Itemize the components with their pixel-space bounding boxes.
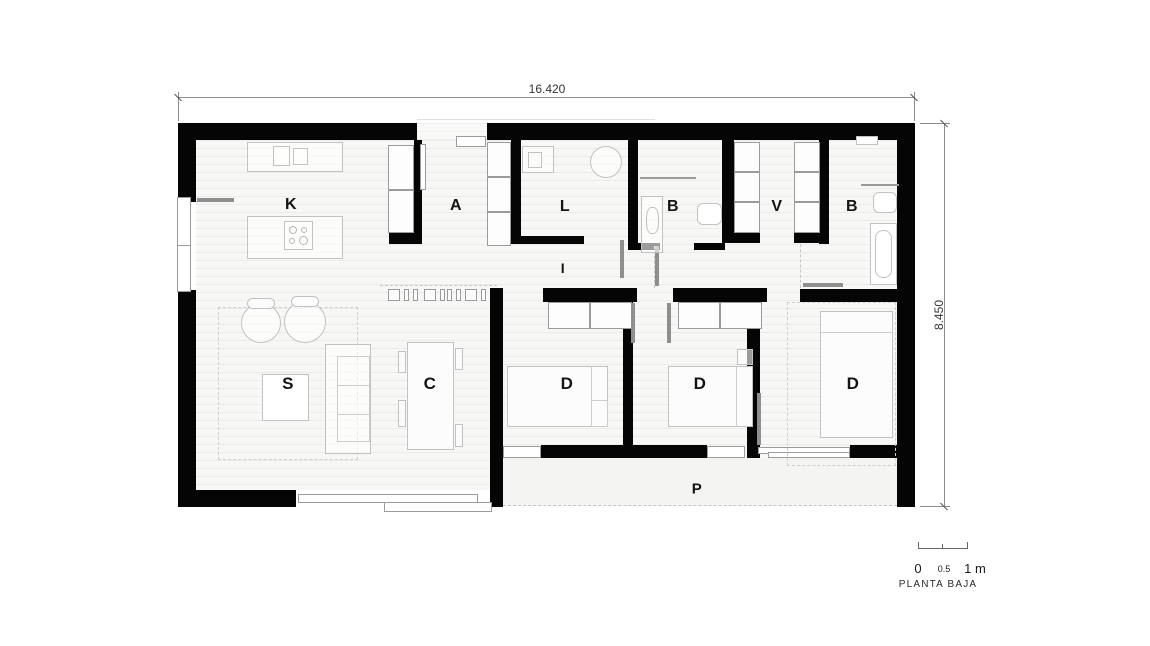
armchair-back xyxy=(291,296,319,307)
wall-dressing-base-right xyxy=(794,233,821,243)
shower-screen xyxy=(640,177,696,179)
scale-bar-tick xyxy=(918,542,919,549)
scale-bar-line xyxy=(918,548,968,549)
hall-shelf-box xyxy=(481,289,486,301)
wall-entrance-laundry xyxy=(511,140,521,244)
bedroom2-closet-door xyxy=(678,302,720,329)
room-label-kitchen: K xyxy=(285,196,297,214)
armchair xyxy=(241,303,281,343)
cooktop xyxy=(284,221,313,250)
wall-laundry-bottom xyxy=(511,236,584,244)
bathtub-inner xyxy=(875,230,892,278)
window-mullion xyxy=(178,245,191,246)
bath2-shelf xyxy=(856,136,878,145)
room-label-dining: C xyxy=(424,374,437,394)
window-bedroom1-porch xyxy=(503,446,541,458)
dressing-wardrobe xyxy=(794,142,820,172)
wall-left-upper xyxy=(178,123,196,202)
sofa-cushion-line xyxy=(337,385,370,386)
scale-label-zero: 0 xyxy=(914,561,921,576)
dining-chair xyxy=(455,424,463,447)
hall-shelf-box xyxy=(404,289,409,301)
bed xyxy=(668,366,753,427)
dining-chair xyxy=(398,400,406,427)
room-label-entrance: A xyxy=(450,197,462,215)
door-leaf-master xyxy=(803,283,843,287)
wall-left-lower xyxy=(178,290,196,507)
nightstand xyxy=(737,349,753,365)
bed-pillow-line xyxy=(821,332,893,333)
room-label-bathroom2: B xyxy=(846,198,858,216)
wall-laundry-bath1 xyxy=(628,140,638,250)
wall-porch-a xyxy=(541,445,707,458)
hall-shelf-box xyxy=(413,289,418,301)
bed-corner xyxy=(591,400,608,427)
wall-bath1-bottom-right xyxy=(694,243,725,250)
dressing-wardrobe xyxy=(734,202,760,233)
room-label-laundry: L xyxy=(560,198,570,216)
door-leaf-left-window xyxy=(197,198,234,202)
plan-caption: PLANTA BAJA xyxy=(899,579,978,590)
dining-chair xyxy=(455,348,463,370)
door-leaf-master-porch xyxy=(757,393,761,445)
toilet xyxy=(697,203,722,225)
armchair xyxy=(284,301,326,343)
room-label-bathroom1: B xyxy=(667,198,679,216)
room-label-bedroom1: D xyxy=(561,374,574,394)
wall-bottom-left xyxy=(178,490,296,507)
dressing-wardrobe xyxy=(794,172,820,202)
bed xyxy=(507,366,608,427)
porch-edge-dashed-line xyxy=(503,505,897,506)
hall-shelf-box xyxy=(440,289,445,301)
dining-chair xyxy=(398,351,406,373)
cooktop-burner xyxy=(301,227,307,233)
bathtub xyxy=(870,223,897,285)
armchair-back xyxy=(247,298,275,309)
room-label-porch: P xyxy=(692,481,703,498)
roof-overhang-line xyxy=(417,119,655,120)
door-leaf-bedroom2 xyxy=(667,303,671,343)
hall-shelf-box xyxy=(465,289,477,301)
wall-kitchen-entrance-foot xyxy=(389,233,422,244)
dimension-width-value: 16.420 xyxy=(529,82,566,96)
room-label-dressing: V xyxy=(771,198,782,216)
washing-machine-door xyxy=(528,152,542,168)
scale-bar-tick xyxy=(967,542,968,549)
wall-living-bedroom1 xyxy=(490,288,503,507)
sofa xyxy=(325,344,371,454)
entrance-shelf xyxy=(487,177,511,212)
room-label-bedroom2: D xyxy=(694,374,707,394)
kitchen-tall-cabinet xyxy=(388,145,414,190)
kitchen-sink xyxy=(273,146,290,166)
dressing-wardrobe xyxy=(794,202,820,233)
hall-shelf-box xyxy=(388,289,400,301)
washbasin xyxy=(646,207,659,234)
hall-shelf-box xyxy=(424,289,436,301)
dining-table xyxy=(407,342,454,450)
hall-shelf-box xyxy=(456,289,461,301)
wall-top-left xyxy=(178,123,417,140)
entrance-shelf xyxy=(487,212,511,246)
sofa-seat xyxy=(337,356,370,442)
bedroom2-closet-door xyxy=(720,302,762,329)
entrance-door-panel xyxy=(456,136,486,147)
bath1-vanity xyxy=(641,196,663,253)
scale-bar-tick xyxy=(942,544,943,549)
scale-label-one: 1 m xyxy=(964,561,986,576)
wall-master-top xyxy=(800,289,915,302)
door-leaf-laundry xyxy=(620,240,624,278)
cooktop-burner xyxy=(289,238,295,244)
cooktop-burner xyxy=(299,236,308,245)
kitchen-sink xyxy=(293,148,308,165)
wall-bath2-left xyxy=(819,140,829,244)
entrance-door-leaf xyxy=(420,144,426,190)
floor-plan-canvas: K A L B V B I S C D D D P 16.420 8.450 0… xyxy=(0,0,1150,646)
shower-screen xyxy=(861,184,899,186)
sofa-cushion-line xyxy=(337,414,370,415)
bedroom1-closet-door xyxy=(590,302,632,329)
wall-dressing-base-left xyxy=(733,233,760,243)
window-left-wall xyxy=(177,197,191,292)
wall-top-right xyxy=(487,123,915,140)
dressing-wardrobe xyxy=(734,172,760,202)
window-bedroom2-porch xyxy=(707,446,745,458)
hall-shelf-box xyxy=(447,289,452,301)
master-door-dashed-line xyxy=(800,244,801,288)
room-label-living: S xyxy=(282,374,294,394)
hall-dashed-line xyxy=(380,285,497,286)
scale-label-half: 0.5 xyxy=(938,564,951,574)
cooktop-burner xyxy=(289,226,297,234)
bed-pillow-line xyxy=(736,367,737,427)
door-leaf-bedroom1 xyxy=(631,303,635,343)
toilet xyxy=(873,192,897,213)
washing-machine xyxy=(522,146,554,173)
entrance-shelf xyxy=(487,142,511,177)
bedroom1-closet-door xyxy=(548,302,590,329)
dressing-wardrobe xyxy=(734,142,760,172)
room-label-bedroom3: D xyxy=(847,374,860,394)
kitchen-tall-cabinet xyxy=(388,190,414,233)
room-label-hallway: I xyxy=(561,260,565,276)
water-heater xyxy=(590,146,622,178)
dimension-height-value: 8.450 xyxy=(932,300,946,330)
sliding-door-living-panel xyxy=(384,502,492,512)
wall-bath1-dressing xyxy=(722,140,734,243)
dimension-line-top xyxy=(178,97,915,98)
wall-right xyxy=(897,123,915,507)
